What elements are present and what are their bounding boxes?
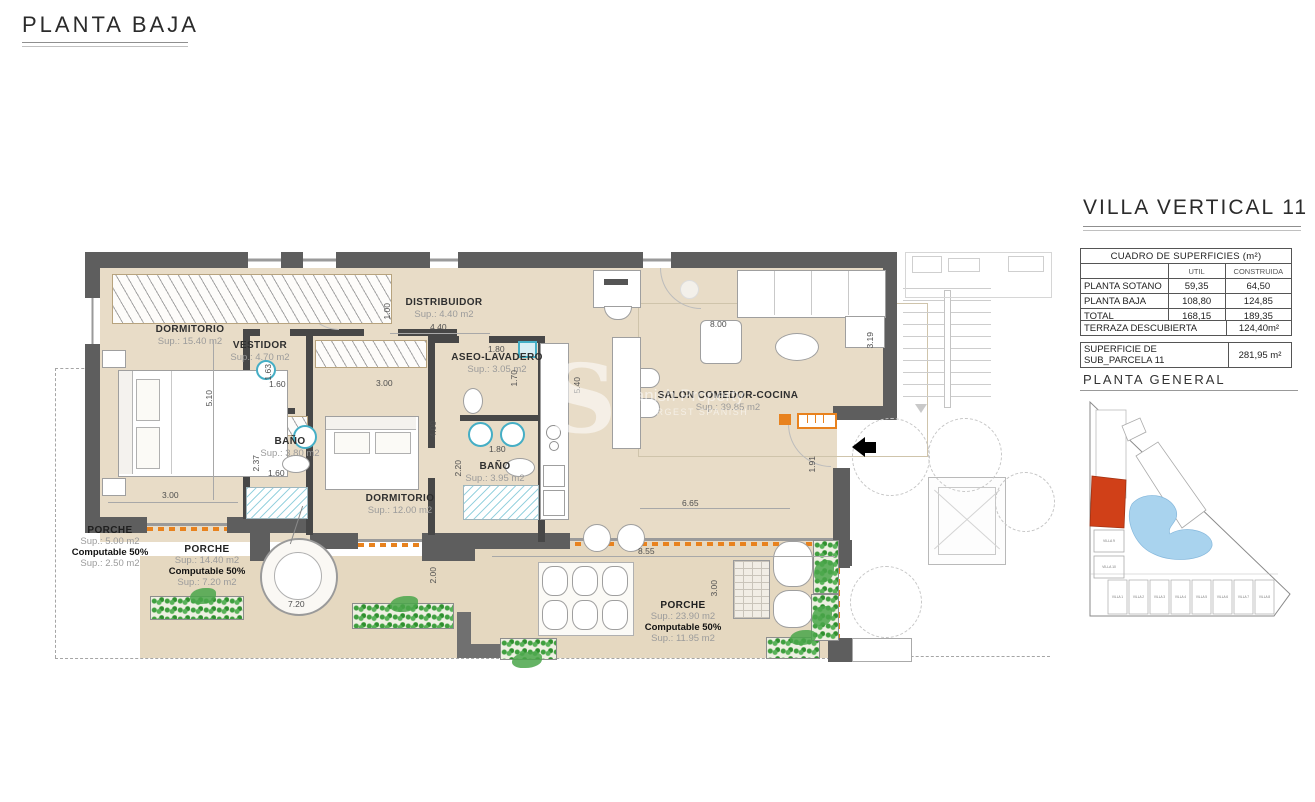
dim-line <box>640 508 790 509</box>
bed-double <box>118 370 288 477</box>
wall-segment <box>250 517 310 533</box>
dim-label: 3.19 <box>866 332 875 349</box>
dim-label: 4.40 <box>430 323 447 332</box>
parcela-label: SUPERFICIE DE SUB_PARCELA 11 <box>1081 343 1229 368</box>
wall-segment <box>671 252 897 268</box>
room-area: Sup.: 4.70 m2 <box>190 352 330 363</box>
dim-line <box>390 333 490 334</box>
row-name: PLANTA BAJA <box>1081 294 1169 309</box>
villa-title: VILLA VERTICAL 11 <box>1083 196 1303 220</box>
interior-wall <box>290 329 364 336</box>
interior-wall <box>460 415 540 421</box>
room-area: Sup.: 3.95 m2 <box>425 473 565 484</box>
coffee-table <box>775 333 819 361</box>
parcel-boundary-dashed <box>55 368 56 658</box>
porch-area: Sup.: 14.40 m2 <box>132 555 282 566</box>
villa-label: VILLA 1 <box>1112 595 1123 599</box>
dim-label: 3.00 <box>376 379 393 388</box>
window-sill-hatch <box>358 543 422 547</box>
room-name: BAÑO <box>220 436 360 447</box>
outdoor-chair <box>572 600 598 630</box>
porch-area: Sup.: 23.90 m2 <box>608 611 758 622</box>
porch-name: PORCHE <box>132 544 282 555</box>
outdoor-chair <box>542 600 568 630</box>
porch-area-computed: Sup.: 7.20 m2 <box>132 577 282 588</box>
room-area: Sup.: 3.80 m2 <box>220 448 360 459</box>
dim-label: 5.10 <box>205 390 214 407</box>
desk <box>593 270 641 308</box>
dim-label: 1.80 <box>489 445 506 454</box>
outdoor-chair <box>572 566 598 596</box>
outdoor-chair <box>602 566 628 596</box>
villa-label: VILLA 5 <box>1196 595 1207 599</box>
interior-wall <box>435 336 459 343</box>
wardrobe-closet <box>315 340 427 368</box>
room-label-salon: SALON COMEDOR-COCINA Sup.: 39.85 m2 <box>628 390 828 413</box>
tree-canopy <box>852 418 930 496</box>
room-label-bano-2: BAÑO Sup.: 3.95 m2 <box>425 461 565 484</box>
room-label-vestidor: VESTIDOR Sup.: 4.70 m2 <box>190 340 330 363</box>
row-util: 108,80 <box>1168 294 1225 309</box>
fireplace <box>797 413 837 429</box>
porch-computable: Computable 50% <box>132 566 282 577</box>
terrace-l-wall <box>457 644 503 658</box>
villa-label: VILLA 9 <box>1103 539 1115 543</box>
dim-label: 1.60 <box>269 380 286 389</box>
window <box>85 298 100 344</box>
dim-label: 5.40 <box>573 377 582 394</box>
dim-label: 4.00 <box>429 421 438 438</box>
wall-segment <box>458 252 643 268</box>
toilet <box>463 388 483 414</box>
room-area: Sup.: 4.40 m2 <box>374 309 514 320</box>
dim-label: 8.00 <box>710 320 727 329</box>
dim-label: 1.00 <box>383 303 392 320</box>
row-construida: 64,50 <box>1225 279 1291 294</box>
surface-table-title: CUADRO DE SUPERFICIES (m²) <box>1081 249 1292 264</box>
villa-label: VILLA 10 <box>1102 565 1116 569</box>
lounge-chair <box>773 541 813 587</box>
kitchen-appliance <box>543 490 565 516</box>
room-area: Sup.: 3.05 m2 <box>427 364 567 375</box>
room-name: DORMITORIO <box>330 493 470 504</box>
row-construida: 124,85 <box>1225 294 1291 309</box>
plant <box>512 652 542 668</box>
dim-label: 1.80 <box>488 345 505 354</box>
sofa <box>737 270 886 318</box>
terraza-value: 124,40m² <box>1227 321 1292 336</box>
shower <box>463 485 539 520</box>
stair-direction-arrow <box>915 404 927 413</box>
villa-label: VILLA 4 <box>1175 595 1186 599</box>
room-label-dormitorio-2: DORMITORIO Sup.: 12.00 m2 <box>330 493 470 516</box>
chair <box>583 524 611 552</box>
entrance-arrow-icon <box>852 437 876 457</box>
wall-stub <box>828 638 854 662</box>
row-name: PLANTA SOTANO <box>1081 279 1169 294</box>
bar-stool <box>640 368 660 388</box>
site-plan-title: PLANTA GENERAL <box>1083 372 1226 387</box>
nightstand <box>102 350 126 368</box>
lounge-chair <box>773 590 813 628</box>
fireplace-unit <box>779 414 791 425</box>
room-label-distribuidor: DISTRIBUIDOR Sup.: 4.40 m2 <box>374 297 514 320</box>
porch-label-right: PORCHE Sup.: 23.90 m2 Computable 50% Sup… <box>608 600 758 644</box>
villa-label: VILLA 2 <box>1133 595 1144 599</box>
wall-segment <box>281 252 303 268</box>
dim-label: 3.00 <box>710 580 719 597</box>
dim-label: 6.65 <box>682 499 699 508</box>
porch-label-middle: PORCHE Sup.: 14.40 m2 Computable 50% Sup… <box>132 544 282 588</box>
exterior-step <box>852 638 912 662</box>
dim-label: 3.00 <box>162 491 179 500</box>
window <box>643 252 671 268</box>
porch-computable: Computable 50% <box>608 622 758 633</box>
villa-label: VILLA 7 <box>1238 595 1249 599</box>
dim-label: 7.20 <box>288 600 305 609</box>
parcela-value: 281,95 m² <box>1229 343 1292 368</box>
porch-name: PORCHE <box>608 600 758 611</box>
room-area: Sup.: 39.85 m2 <box>628 402 828 413</box>
room-label-bano-1: BAÑO Sup.: 3.80 m2 <box>220 436 360 459</box>
column-header-construida: CONSTRUIDA <box>1225 264 1291 279</box>
window-glass <box>358 539 422 542</box>
surface-table: CUADRO DE SUPERFICIES (m²) UTIL CONSTRUI… <box>1080 248 1292 324</box>
dim-label: 1.60 <box>268 469 285 478</box>
highlighted-villa-11 <box>1090 476 1126 528</box>
porch-name: PORCHE <box>35 525 185 536</box>
wardrobe-closet <box>112 274 392 324</box>
terraza-label: TERRAZA DESCUBIERTA <box>1081 321 1227 336</box>
ceiling-light <box>680 280 699 299</box>
room-label-aseo-lavadero: ASEO-LAVADERO Sup.: 3.05 m2 <box>427 352 567 375</box>
dim-line <box>213 340 214 500</box>
dim-label: 8.55 <box>638 547 655 556</box>
villa-label: VILLA 8 <box>1259 595 1270 599</box>
tree-canopy <box>995 472 1055 532</box>
table-row: PLANTA SOTANO 59,35 64,50 <box>1081 279 1292 294</box>
row-util: 59,35 <box>1168 279 1225 294</box>
dim-label: 2.20 <box>454 460 463 477</box>
dim-line <box>492 556 835 557</box>
parcela-row: SUPERFICIE DE SUB_PARCELA 11 281,95 m² <box>1080 342 1292 368</box>
wall-segment <box>475 533 570 549</box>
villa-label: VILLA 3 <box>1154 595 1165 599</box>
tree-canopy <box>928 418 1002 492</box>
wall-segment <box>227 517 250 533</box>
page-title: PLANTA BAJA <box>22 12 199 38</box>
neighbor-outline <box>912 256 942 273</box>
wall-pier <box>422 533 475 561</box>
porch-area-computed: Sup.: 11.95 m2 <box>608 633 758 644</box>
neighbor-outline <box>948 258 980 272</box>
dim-label: 2.37 <box>252 455 261 472</box>
room-name: SALON COMEDOR-COCINA <box>628 390 828 401</box>
room-area: Sup.: 12.00 m2 <box>330 505 470 516</box>
dim-line <box>108 502 238 503</box>
wall-segment <box>85 252 248 268</box>
floor-plan-sheet: PLANTA BAJA <box>0 0 1315 802</box>
neighbor-outline <box>1008 256 1044 272</box>
nightstand <box>102 478 126 496</box>
surface-table-corner <box>1081 264 1169 279</box>
column-header-util: UTIL <box>1168 264 1225 279</box>
wall-segment <box>85 268 100 298</box>
dim-label: 1.91 <box>808 456 817 473</box>
room-name: DISTRIBUIDOR <box>374 297 514 308</box>
terraza-row: TERRAZA DESCUBIERTA 124,40m² <box>1080 320 1292 336</box>
wall-segment <box>336 252 430 268</box>
room-name: BAÑO <box>425 461 565 472</box>
parcel-boundary-dashed <box>55 658 835 659</box>
site-plan: VILLA 9 VILLA 10 VILLA 1 VILLA 2 VILLA 3… <box>1078 398 1303 633</box>
villa-label: VILLA 6 <box>1217 595 1228 599</box>
kitchen-sink <box>546 425 561 440</box>
room-name: DORMITORIO <box>110 324 270 335</box>
dim-label: 2.00 <box>429 567 438 584</box>
page-title-rule <box>22 42 188 47</box>
dim-label: 1.70 <box>510 370 519 387</box>
villa-title-rule <box>1083 226 1301 231</box>
stair-rail <box>944 290 951 408</box>
table-row: PLANTA BAJA 108,80 124,85 <box>1081 294 1292 309</box>
site-plan-title-rule <box>1080 390 1298 391</box>
kitchen-sink <box>549 441 559 451</box>
window <box>430 252 458 268</box>
tree-canopy <box>850 566 922 638</box>
room-name: VESTIDOR <box>190 340 330 351</box>
window <box>303 252 336 268</box>
wall-segment <box>85 344 100 532</box>
window <box>248 252 281 268</box>
outdoor-chair <box>542 566 568 596</box>
